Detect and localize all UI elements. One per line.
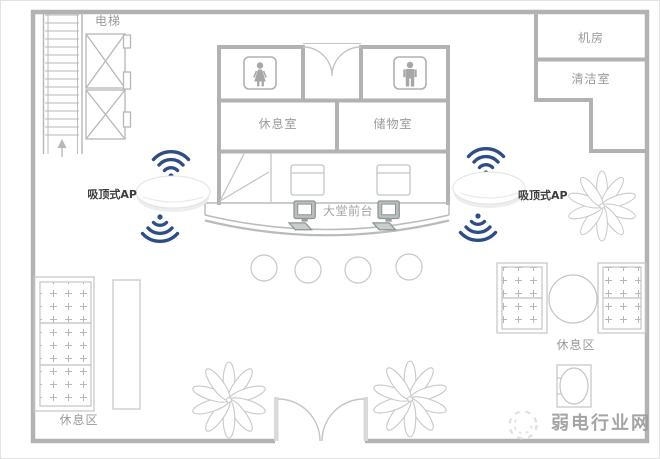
stool-icon	[251, 255, 277, 281]
stool-icon	[396, 254, 422, 280]
round-table-icon	[549, 275, 597, 323]
wifi-signal-icon	[143, 214, 178, 241]
plant-icon	[372, 361, 448, 437]
reception-furniture	[220, 153, 410, 202]
watermark-text: 弱电行业网	[551, 413, 659, 435]
ap-right-label: 吸顶式AP	[518, 189, 576, 202]
rest-area-left-label: 休息区	[50, 413, 108, 427]
floorplan-drawing	[1, 1, 660, 459]
stool-icon	[345, 257, 371, 283]
rest-area-right-label: 休息区	[547, 338, 605, 352]
male-restroom-icon	[394, 57, 426, 89]
female-restroom-icon	[244, 57, 276, 89]
lounge-room-label: 休息室	[239, 117, 317, 131]
stool-icon	[295, 257, 321, 283]
watermark-logo-icon	[510, 412, 537, 439]
wifi-signal-icon	[154, 152, 189, 179]
back-double-door-icon	[303, 44, 361, 77]
front-desk-label: 大堂前台	[321, 204, 375, 218]
ceiling-ap-left	[136, 152, 210, 242]
stool-icon	[557, 365, 591, 407]
plant-icon	[567, 171, 637, 241]
lobby-stools	[251, 254, 422, 283]
ap-left-label: 吸顶式AP	[79, 188, 137, 201]
cleaning-room-label: 清洁室	[552, 72, 630, 86]
entrance-double-door-icon	[274, 397, 368, 441]
floor-plan-canvas: 电梯 机房 清洁室 休息室 储物室 大堂前台 吸顶式AP 吸顶式AP 休息区 休…	[0, 0, 660, 459]
wifi-signal-icon	[461, 213, 496, 240]
computer-icon	[289, 201, 315, 230]
plant-icon	[191, 362, 267, 438]
rest-area-left-furniture	[34, 277, 140, 411]
stairs-icon	[44, 13, 83, 157]
ceiling-ap-right	[453, 149, 525, 241]
rest-area-right-furniture	[497, 263, 646, 407]
equipment-room-label: 机房	[558, 31, 624, 45]
elevator-shaft-icon	[86, 34, 131, 139]
elevator-label: 电梯	[84, 14, 132, 28]
storage-room-label: 储物室	[354, 117, 432, 131]
table-icon	[113, 280, 140, 409]
